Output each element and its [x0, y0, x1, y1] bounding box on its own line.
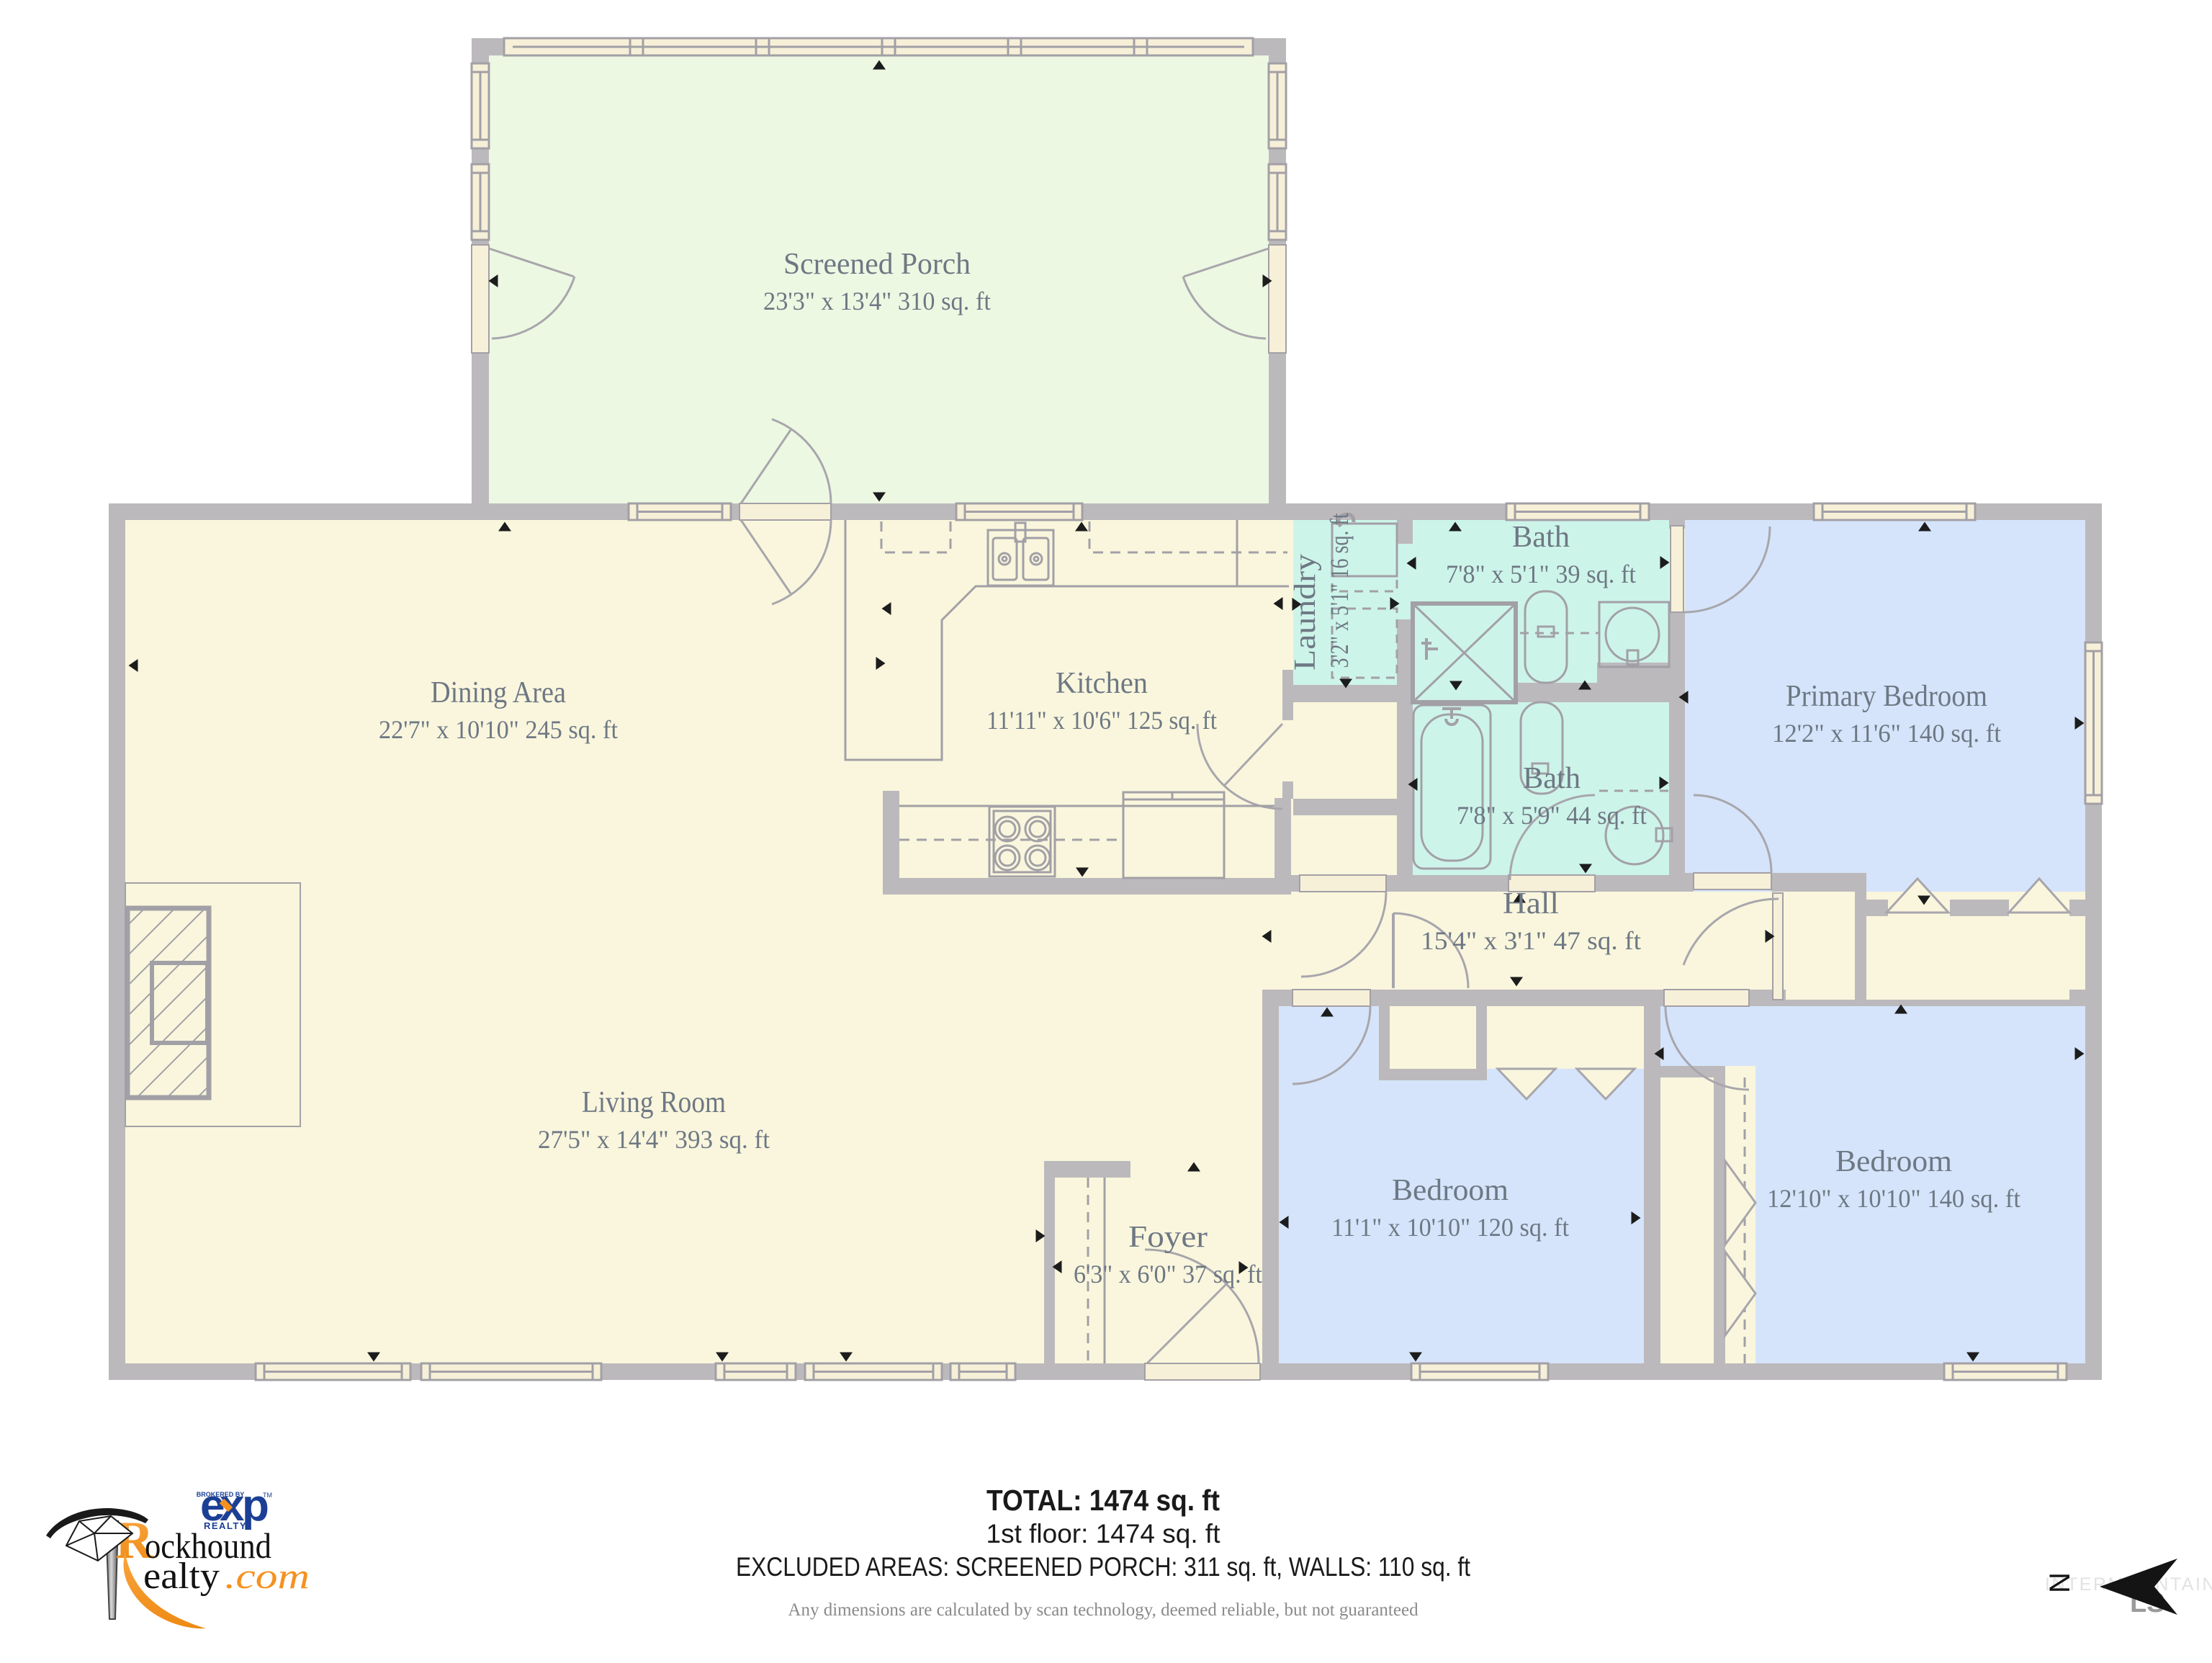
svg-text:7'8" x 5'1" 39 sq. ft: 7'8" x 5'1" 39 sq. ft [1446, 560, 1636, 588]
svg-text:Living Room: Living Room [582, 1086, 726, 1119]
svg-text:Foyer: Foyer [1128, 1221, 1208, 1254]
svg-text:Dining Area: Dining Area [431, 676, 566, 709]
svg-text:TM: TM [263, 1492, 272, 1499]
svg-text:TOTAL: 1474 sq. ft: TOTAL: 1474 sq. ft [986, 1484, 1220, 1517]
svg-text:12'2" x 11'6" 140 sq. ft: 12'2" x 11'6" 140 sq. ft [1772, 719, 2001, 748]
svg-text:Primary Bedroom: Primary Bedroom [1786, 680, 1987, 713]
svg-text:Bedroom: Bedroom [1835, 1145, 1952, 1178]
svg-text:6'3" x 6'0" 37 sq. ft: 6'3" x 6'0" 37 sq. ft [1074, 1260, 1262, 1288]
svg-text:3'2" x 5'1" 16 sq. ft: 3'2" x 5'1" 16 sq. ft [1325, 514, 1354, 668]
svg-text:N: N [2044, 1572, 2076, 1593]
svg-text:Bedroom: Bedroom [1392, 1174, 1509, 1207]
svg-text:Kitchen: Kitchen [1056, 667, 1148, 700]
svg-text:Bath: Bath [1512, 521, 1570, 554]
svg-text:22'7" x 10'10" 245 sq. ft: 22'7" x 10'10" 245 sq. ft [379, 715, 618, 744]
svg-text:Laundry: Laundry [1289, 554, 1322, 671]
svg-text:1st floor: 1474 sq. ft: 1st floor: 1474 sq. ft [986, 1519, 1221, 1548]
svg-text:11'1" x 10'10" 120 sq. ft: 11'1" x 10'10" 120 sq. ft [1331, 1213, 1569, 1242]
svg-text:REALTY: REALTY [204, 1520, 247, 1531]
svg-text:.com: .com [225, 1556, 310, 1596]
svg-text:23'3" x 13'4" 310 sq. ft: 23'3" x 13'4" 310 sq. ft [763, 287, 991, 315]
svg-text:EXCLUDED AREAS: SCREENED PORCH: EXCLUDED AREAS: SCREENED PORCH: 311 sq. … [736, 1552, 1471, 1582]
svg-text:Hall: Hall [1503, 887, 1559, 920]
svg-text:11'11" x 10'6" 125 sq. ft: 11'11" x 10'6" 125 sq. ft [986, 706, 1217, 735]
svg-text:Screened Porch: Screened Porch [783, 248, 971, 281]
svg-text:12'10" x 10'10" 140 sq. ft: 12'10" x 10'10" 140 sq. ft [1767, 1184, 2020, 1213]
svg-text:7'8" x 5'9" 44 sq. ft: 7'8" x 5'9" 44 sq. ft [1457, 801, 1647, 830]
svg-text:15'4" x 3'1" 47 sq. ft: 15'4" x 3'1" 47 sq. ft [1421, 926, 1641, 955]
svg-text:Bath: Bath [1523, 762, 1581, 795]
svg-text:Any dimensions are calculated: Any dimensions are calculated by scan te… [788, 1600, 1419, 1620]
svg-text:ealty: ealty [143, 1556, 220, 1597]
svg-text:27'5" x 14'4" 393 sq. ft: 27'5" x 14'4" 393 sq. ft [538, 1125, 770, 1154]
